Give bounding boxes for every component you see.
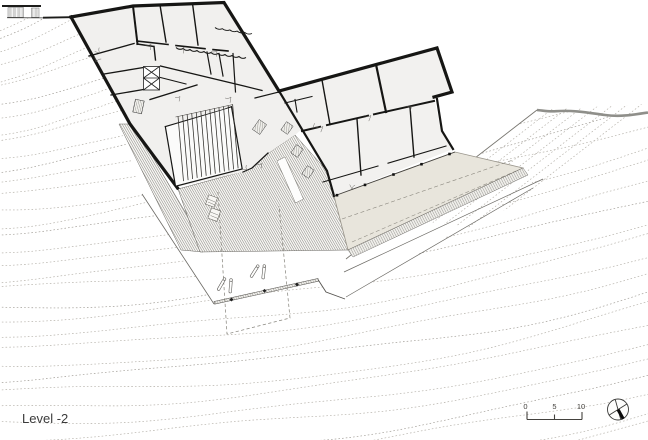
- svg-text:Level -2: Level -2: [22, 411, 68, 426]
- svg-text:10: 10: [577, 402, 585, 411]
- svg-text:0: 0: [523, 402, 527, 411]
- svg-text:5: 5: [552, 402, 556, 411]
